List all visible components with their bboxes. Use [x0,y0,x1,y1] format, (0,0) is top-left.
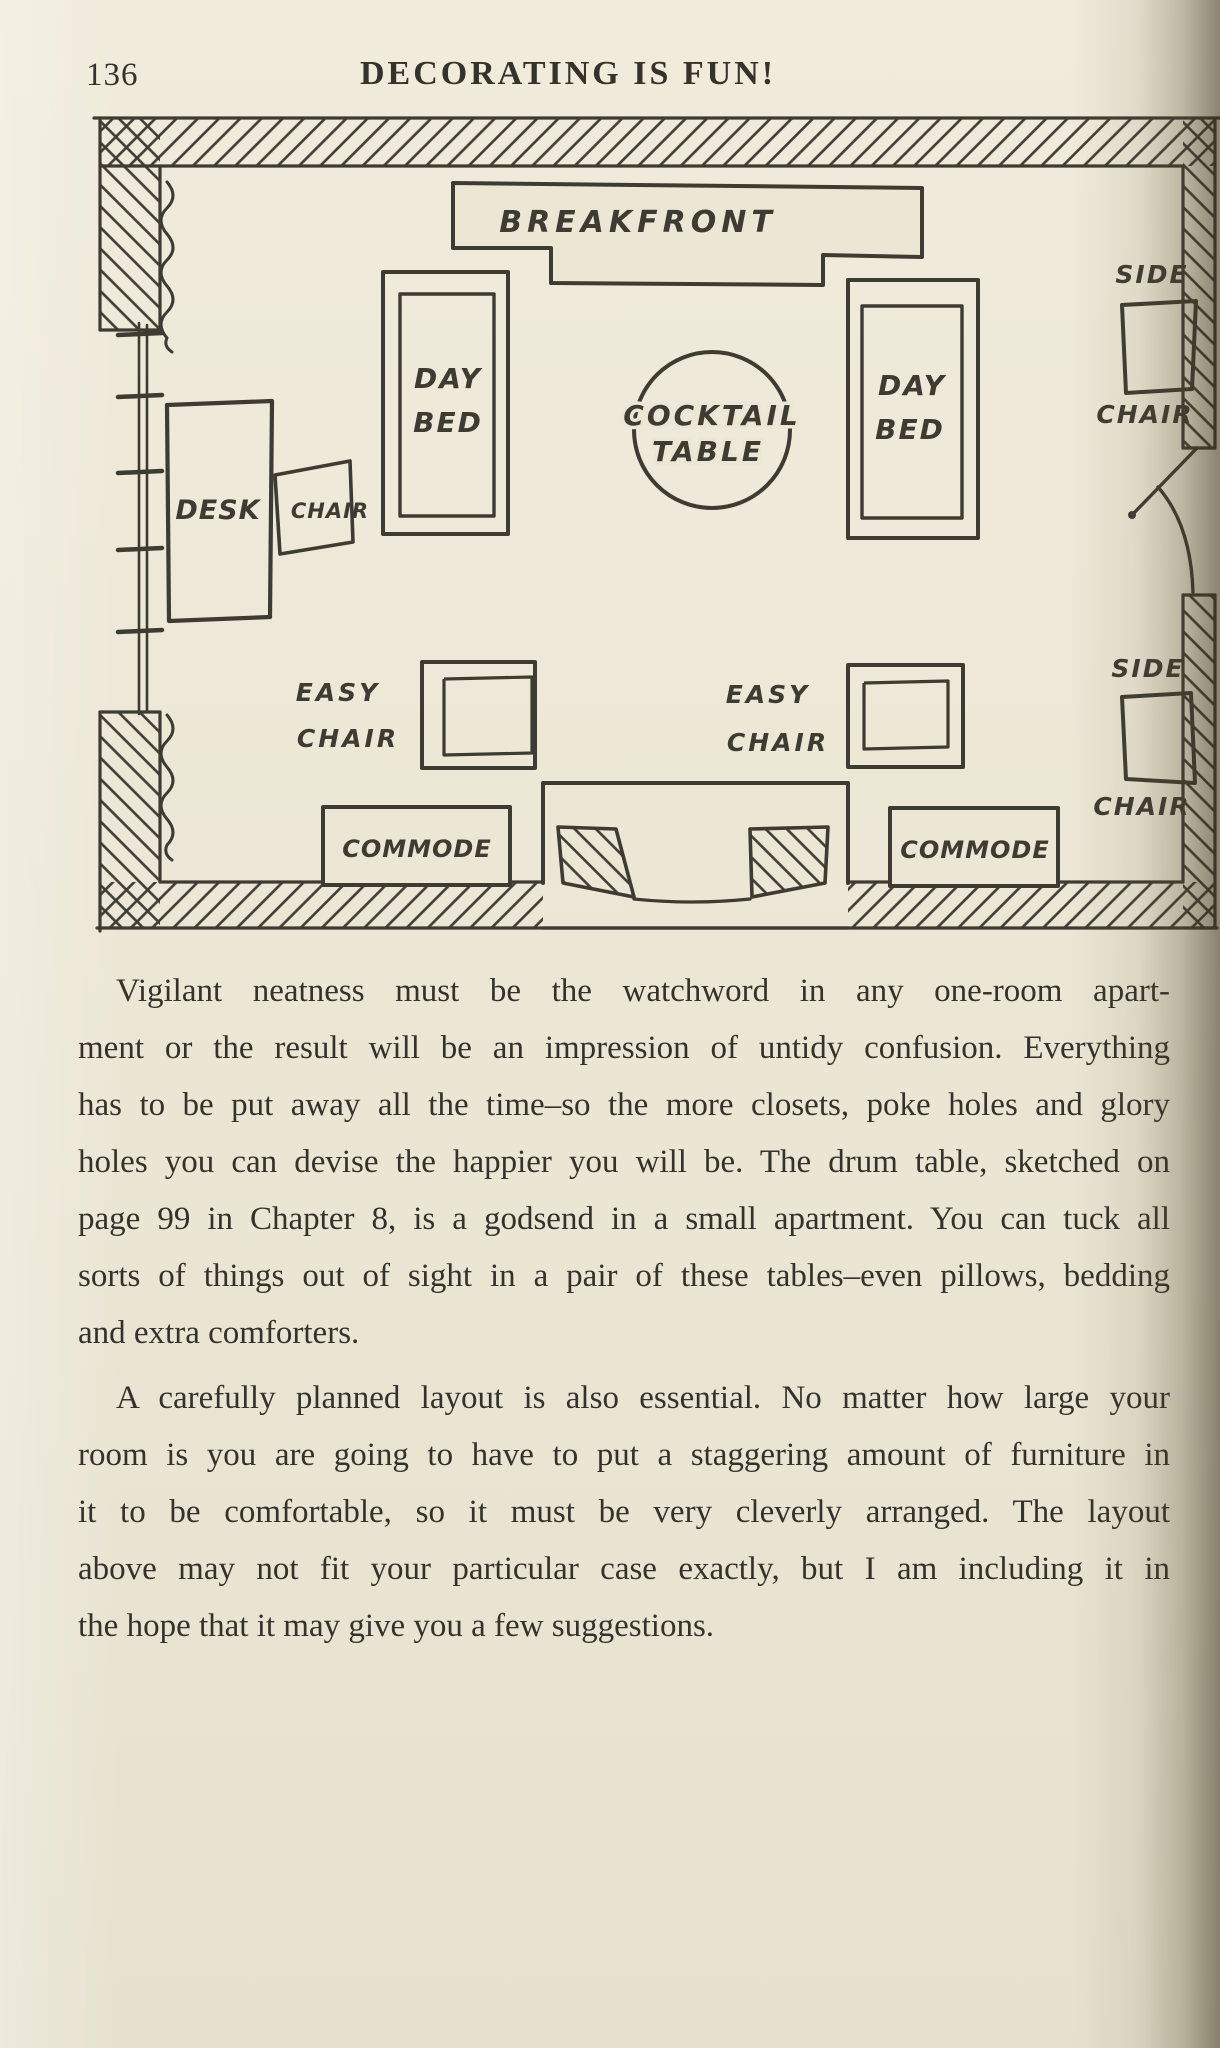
floor-plan-diagram: BREAKFRONT DAY BED DAY BED COCKTAIL TABL… [60,105,1220,950]
desk: DESK [167,401,272,621]
window-left [118,323,162,714]
text-line: sorts of things out of sight in a pair o… [78,1248,1170,1305]
easy-chair-right: EASY CHAIR [726,665,963,767]
svg-text:SIDE: SIDE [1115,260,1188,289]
text-line: above may not fit your particular case e… [78,1541,1170,1598]
svg-text:DAY: DAY [414,362,483,395]
svg-text:BED: BED [413,406,483,439]
text-line: has to be put away all the time–so the m… [78,1077,1170,1134]
door-arc [1158,487,1193,592]
text-line: A carefully planned layout is also essen… [78,1370,1170,1427]
book-page: 136 DECORATING IS FUN! [0,0,1220,2048]
page-number: 136 [86,57,139,94]
svg-text:TABLE: TABLE [652,435,764,468]
svg-text:EASY: EASY [726,680,811,709]
svg-text:CHAIR: CHAIR [291,499,369,523]
easy-chair-left: EASY CHAIR [296,662,535,768]
door-leaf [1132,448,1197,515]
text-line: room is you are going to have to put a s… [78,1427,1170,1484]
breakfront-label: BREAKFRONT [499,205,777,240]
svg-text:CHAIR: CHAIR [1096,400,1193,429]
svg-text:COCKTAIL: COCKTAIL [623,399,800,432]
text-line: ment or the result will be an impression… [78,1020,1170,1077]
text-line: Vigilant neatness must be the watchword … [78,963,1170,1020]
text-line: holes you can devise the happier you wil… [78,1134,1170,1191]
day-bed-left: DAY BED [383,272,508,534]
fireplace-jamb-right [750,827,828,897]
paragraph-2: A carefully planned layout is also essen… [78,1370,1170,1655]
svg-text:BED: BED [875,413,945,446]
svg-text:CHAIR: CHAIR [297,724,399,753]
side-chair-top: SIDE CHAIR [1096,260,1196,429]
body-text: Vigilant neatness must be the watchword … [78,963,1170,1655]
text-line: and extra comforters. [78,1305,1170,1362]
desk-chair: CHAIR [275,461,369,554]
running-title: DECORATING IS FUN! [360,55,776,93]
commode-right: COMMODE [890,808,1058,886]
text-line: page 99 in Chapter 8, is a godsend in a … [78,1191,1170,1248]
day-bed-right: DAY BED [848,280,978,538]
door-swing [1128,448,1197,592]
door-knob [1128,511,1136,519]
cocktail-table: COCKTAIL TABLE [623,352,800,508]
svg-text:CHAIR: CHAIR [727,728,829,757]
side-chair-bottom: SIDE CHAIR [1093,654,1195,821]
paragraph-1: Vigilant neatness must be the watchword … [78,963,1170,1362]
text-line: it to be comfortable, so it must be very… [78,1484,1170,1541]
text-line: the hope that it may give you a few sugg… [78,1598,1170,1655]
svg-text:EASY: EASY [296,678,381,707]
svg-text:CHAIR: CHAIR [1093,792,1190,821]
svg-text:SIDE: SIDE [1111,654,1184,683]
fireplace [543,783,848,928]
svg-text:DAY: DAY [878,369,947,402]
svg-text:COMMODE: COMMODE [900,836,1050,864]
svg-text:DESK: DESK [175,495,261,526]
svg-text:COMMODE: COMMODE [342,835,492,863]
breakfront: BREAKFRONT [453,183,922,285]
commode-left: COMMODE [323,807,510,885]
curtain-bottom-left [161,715,173,860]
curtain-top-left [161,182,173,352]
